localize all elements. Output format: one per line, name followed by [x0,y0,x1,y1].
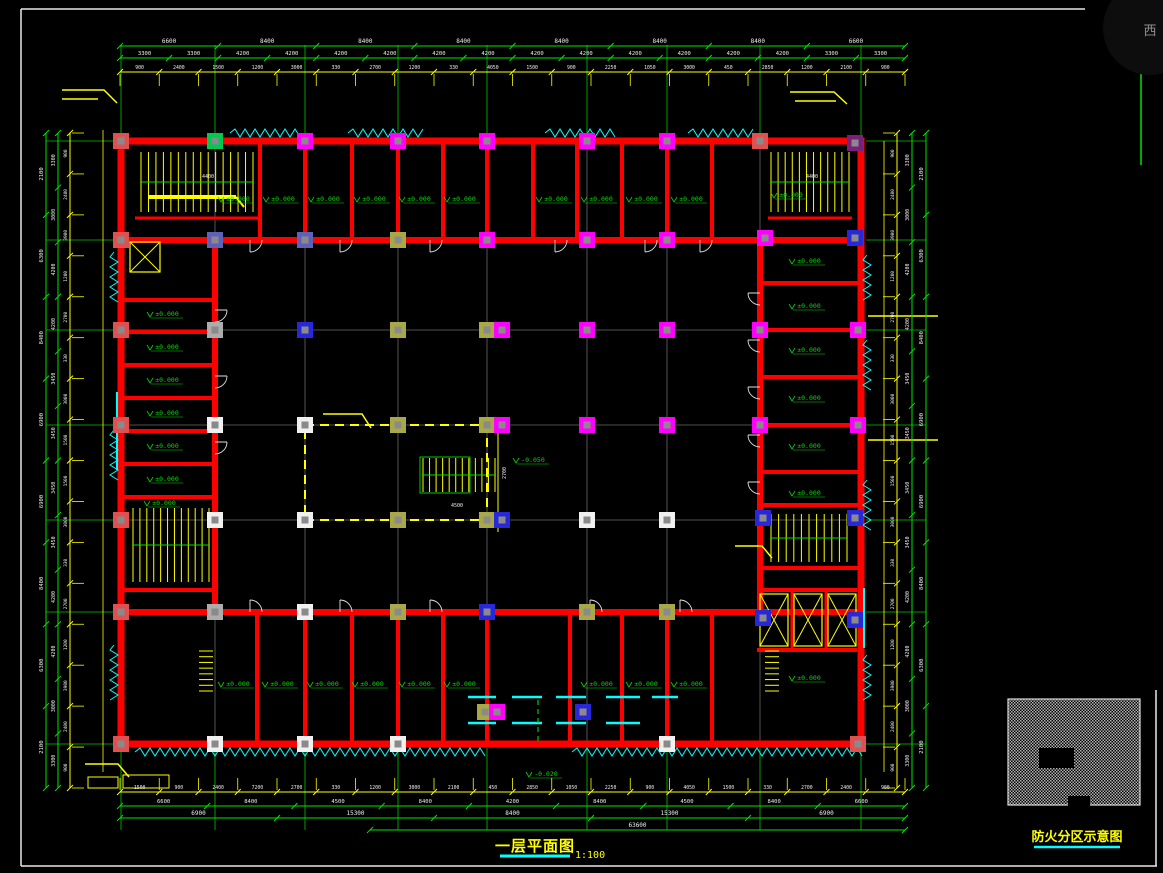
cad-viewport[interactable]: 西 ±0.000±0.000±0.000±0.000±0.000±0.000±0… [0,0,1163,873]
dim-text: 3000 [683,65,695,71]
dim-text: 8400 [919,331,925,344]
dim-text: 900 [646,785,655,791]
column-core [484,609,491,616]
leader-line [790,92,847,104]
column-core [212,138,219,145]
column-core [118,741,125,748]
dim-text: 2100 [448,785,460,791]
column-core [302,327,309,334]
dim-text: 4200 [506,799,519,805]
elevation-flag [526,772,532,777]
elevation-label: ±0.000 [271,195,295,203]
dim-text: 2850 [526,785,538,791]
window-zigzag [348,129,423,137]
dim-text: 3300 [905,755,911,767]
elevation-label: ±0.000 [226,195,250,203]
elevation-label: ±0.000 [797,442,821,450]
dim-text: 2700 [890,312,896,323]
column-core [302,237,309,244]
dim-text: 1500 [723,785,735,791]
dim-text: 330 [890,354,896,362]
dim-text: 4200 [678,51,691,57]
column-core [584,237,591,244]
column-core [484,422,491,429]
leader-line [62,90,117,103]
column-core [302,138,309,145]
elevation-flag [147,477,153,482]
elevation-flag [581,197,587,202]
dim-text: 3900 [63,230,69,241]
inner-dim-text: 4500 [451,503,463,509]
elevation-label: ±0.000 [797,489,821,497]
elevation-label: ±0.000 [679,195,703,203]
dim-text: 4200 [51,318,57,330]
elevation-label: ±0.000 [797,674,821,682]
dim-text: 2850 [762,65,774,71]
dim-text: 2400 [173,65,185,71]
column-core [760,615,767,622]
elevation-label: ±0.000 [270,680,294,688]
dim-text: 8400 [505,810,520,817]
dim-text: 2400 [890,189,896,200]
column-core [757,327,764,334]
dim-text: 330 [763,785,772,791]
elevation-label: ±0.000 [679,680,703,688]
dim-text: 3450 [905,536,911,548]
column-core [212,237,219,244]
column-core [302,422,309,429]
column-core [484,138,491,145]
dim-text: 2400 [63,721,69,732]
column-core [762,235,769,242]
dim-text: 1200 [252,65,264,71]
dim-text: 330 [332,785,341,791]
watermark: 西 [1103,0,1163,75]
dim-text: 6900 [39,413,45,426]
dim-text: 1200 [63,271,69,282]
dim-text: 1050 [644,65,656,71]
column-core [212,741,219,748]
column-core [852,617,859,624]
dim-text: 6300 [919,659,925,672]
dim-text: 6900 [919,413,925,426]
dim-text: 1500 [212,65,224,71]
dim-text: 4200 [432,51,445,57]
dim-text: 4050 [487,65,499,71]
elevation-label: ±0.000 [362,195,386,203]
elevation-labels: ±0.000±0.000±0.000±0.000±0.000±0.000±0.0… [144,191,825,778]
dim-text: 1500 [890,434,896,445]
elevation-label: ±0.000 [589,680,613,688]
dim-text: 3450 [51,373,57,385]
column-core [395,517,402,524]
elevation-label: ±0.000 [315,680,339,688]
elevation-label: ±0.000 [797,257,821,265]
dim-text: 1200 [409,65,421,71]
elevation-flag [789,444,795,449]
dim-text: 3000 [890,516,896,527]
inner-dim-text: 4400 [806,174,818,180]
column-core [499,327,506,334]
column-core [855,741,862,748]
column-core [664,422,671,429]
dim-text: 8400 [419,799,432,805]
dim-text: 2700 [890,598,896,609]
leader-tag [123,775,169,788]
dim-text: 2700 [63,598,69,609]
inner-dim-text: 2700 [502,467,508,479]
elevation-flag [771,193,777,198]
column-core [302,741,309,748]
column-core [852,515,859,522]
dim-text: 3300 [138,51,151,57]
dim-text: 1200 [890,639,896,650]
dim-text: 3300 [51,154,57,166]
dim-text: 4200 [51,591,57,603]
keyplan-courtyard-hole [1039,748,1074,768]
elevation-label: ±0.000 [779,191,803,199]
elevation-label: ±0.000 [155,376,179,384]
dim-text: 8400 [260,38,275,45]
elevation-flag [671,682,677,687]
elevation-flag [308,197,314,202]
main-title: 一层平面图 [495,837,575,855]
elevation-flag [262,682,268,687]
dim-text: 2100 [840,65,852,71]
column-core [395,422,402,429]
elevation-label: ±0.000 [155,409,179,417]
elevation-label: ±0.000 [797,346,821,354]
dim-text: 2100 [919,167,925,180]
dim-text: 900 [890,149,896,157]
elevation-label: ±0.000 [226,680,250,688]
elevation-label: ±0.000 [544,195,568,203]
inner-dim-text: 4400 [202,174,214,180]
dim-text: 450 [489,785,498,791]
dim-text: 2100 [39,167,45,180]
elevation-flag [789,259,795,264]
elevation-label: ±0.000 [452,195,476,203]
dim-text: 3000 [63,516,69,527]
elevation-label: ±0.000 [155,475,179,483]
dim-text: 3300 [51,755,57,767]
window-zigzag [688,129,753,137]
dim-text: 4200 [905,646,911,658]
dim-text: 6300 [39,659,45,672]
column-core [212,327,219,334]
column-core [664,237,671,244]
dim-text: 900 [63,763,69,771]
dim-text: 4500 [680,799,693,805]
dim-text: 6600 [157,799,170,805]
dim-text: 1200 [801,65,813,71]
dim-text: 900 [63,149,69,157]
elevation-flag [626,197,632,202]
dim-text: 8400 [593,799,606,805]
column-core [757,138,764,145]
column-core [484,327,491,334]
dim-text: 4050 [683,785,695,791]
dim-text: 3000 [291,65,303,71]
column-core [584,609,591,616]
dim-text: 4200 [579,51,592,57]
column-core [212,422,219,429]
leader-line [323,414,371,428]
dim-text: 4200 [905,263,911,275]
dim-text: 2250 [605,785,617,791]
dim-text: 3000 [890,393,896,404]
dim-text: 6600 [162,38,177,45]
dim-text: 8400 [358,38,373,45]
elevation-flag [626,682,632,687]
dim-text: 2700 [63,312,69,323]
elevation-flag [789,491,795,496]
structural-columns [113,133,866,752]
elevation-flag [147,312,153,317]
elevation-label: -0.020 [534,770,558,778]
leader-line [85,764,129,777]
dim-text: 8400 [456,38,471,45]
dim-text: 1500 [63,434,69,445]
column-core [395,327,402,334]
column-core [482,709,489,716]
dim-text: 4200 [629,51,642,57]
elevators [130,242,856,646]
dim-text: 8400 [244,799,257,805]
window-zigzag [110,645,118,700]
dim-text: 2700 [369,65,381,71]
dim-text: 330 [449,65,458,71]
column-core [584,138,591,145]
dim-text: 1500 [526,65,538,71]
dim-text: 1200 [63,639,69,650]
dim-text: 2250 [605,65,617,71]
dim-text: 900 [890,763,896,771]
elevation-label: ±0.000 [155,442,179,450]
dim-text: 3450 [51,427,57,439]
column-core [484,237,491,244]
dim-text: 3300 [905,154,911,166]
dim-text: 4200 [236,51,249,57]
dim-text: 4200 [383,51,396,57]
elevation-label: ±0.000 [589,195,613,203]
column-core [855,327,862,334]
elevation-flag [144,501,150,506]
column-core [664,327,671,334]
cad-drawing-canvas[interactable]: 西 ±0.000±0.000±0.000±0.000±0.000±0.000±0… [0,0,1163,873]
dim-text: 4200 [905,591,911,603]
dim-text: 3300 [187,51,200,57]
dim-text: 1500 [890,475,896,486]
column-core [855,422,862,429]
dim-text: 8400 [554,38,569,45]
dim-text: 900 [567,65,576,71]
elevation-label: ±0.000 [155,343,179,351]
dim-text: 2700 [801,785,813,791]
dim-text: 1500 [134,785,146,791]
column-core [664,741,671,748]
elevation-label: ±0.000 [634,195,658,203]
window-zigzag [230,129,300,137]
column-core [118,237,125,244]
dim-text: 3000 [51,700,57,712]
column-core [757,422,764,429]
window-zigzag [110,252,118,302]
dim-text: 6600 [855,799,868,805]
dim-text: 1200 [890,271,896,282]
dim-text: 7200 [252,785,264,791]
dim-text: 3900 [890,680,896,691]
elevation-label: ±0.000 [155,310,179,318]
column-core [395,741,402,748]
column-core [852,235,859,242]
column-core [494,709,501,716]
dim-text: 4200 [727,51,740,57]
dim-text: 3450 [51,536,57,548]
column-core [395,609,402,616]
elevation-label: ±0.000 [797,394,821,402]
dim-text: 330 [63,354,69,362]
dim-text: 4200 [481,51,494,57]
dim-text: 4200 [530,51,543,57]
column-core [395,237,402,244]
column-core [584,327,591,334]
dim-text: 15300 [346,810,364,817]
dim-text: 3300 [874,51,887,57]
walls [121,141,861,744]
column-grid [121,135,861,744]
dim-text: 6900 [919,495,925,508]
column-core [664,517,671,524]
drawing-titles: 一层平面图 1:100 防火分区示意图 [495,829,1123,861]
elevation-flag [354,197,360,202]
dim-text: 15300 [660,810,678,817]
dim-text: 3450 [905,373,911,385]
dim-text: 8400 [39,577,45,590]
elevation-label: ±0.000 [634,680,658,688]
dim-text: 900 [175,785,184,791]
dim-text: 4200 [334,51,347,57]
dim-text: 2400 [840,785,852,791]
column-core [118,138,125,145]
column-core [395,138,402,145]
column-core [302,609,309,616]
elevation-flag [147,411,153,416]
leader-line [735,546,772,558]
dim-text: 6900 [39,495,45,508]
elevation-label: ±0.000 [360,680,384,688]
column-core [499,517,506,524]
elevation-flag [789,304,795,309]
dim-text: 3000 [51,209,57,221]
dim-text: 6600 [849,38,864,45]
column-core [584,422,591,429]
column-core [118,609,125,616]
fire-compartment-keyplan [1008,699,1140,806]
elevation-flag [536,197,542,202]
dim-text: 330 [890,558,896,566]
dim-text: 900 [135,65,144,71]
dim-text: 2400 [63,189,69,200]
dim-text: 1200 [369,785,381,791]
column-core [118,327,125,334]
dim-text: 8400 [39,331,45,344]
column-core [852,140,859,147]
dim-text: 3450 [51,482,57,494]
dim-text: 900 [881,65,890,71]
dim-text: 3000 [409,785,421,791]
column-core [212,609,219,616]
elevation-flag [218,682,224,687]
dim-text: 6300 [39,249,45,262]
elevation-flag [789,676,795,681]
dim-text: 6900 [819,810,834,817]
elevation-label: ±0.000 [407,680,431,688]
dim-text: 4200 [51,263,57,275]
dim-text: 8400 [652,38,667,45]
dim-text: 4500 [331,799,344,805]
dim-text: 450 [724,65,733,71]
dim-text: 2100 [919,740,925,753]
elevation-label: ±0.000 [316,195,340,203]
elevation-flag [263,197,269,202]
column-core [584,517,591,524]
dim-text: 330 [63,558,69,566]
dim-text: 3300 [825,51,838,57]
elevation-flag [671,197,677,202]
dim-text: 2400 [212,785,224,791]
main-title-scale: 1:100 [575,850,605,861]
dim-text: 3900 [63,680,69,691]
dim-text: 2100 [39,740,45,753]
dim-text: 8400 [919,577,925,590]
keyplan-entrance-notch [1068,796,1090,806]
elevation-flag [147,345,153,350]
dim-text: 3900 [890,230,896,241]
elevation-flag [789,396,795,401]
dim-text: 2700 [291,785,303,791]
dim-text: 3000 [63,393,69,404]
column-core [664,609,671,616]
elevation-flag [307,682,313,687]
dim-text: 3000 [905,700,911,712]
dim-text: 6900 [191,810,206,817]
dim-text: 3000 [905,209,911,221]
dim-text: 2400 [890,721,896,732]
elevation-label: -0.050 [521,456,545,464]
dim-text: 3450 [905,482,911,494]
column-core [118,517,125,524]
elevation-flag [147,444,153,449]
dim-text: 3450 [905,427,911,439]
dim-text: 6300 [919,249,925,262]
elevation-label: ±0.000 [452,680,476,688]
watermark-text: 西 [1143,24,1156,39]
column-core [664,138,671,145]
elevation-flag [789,348,795,353]
dim-text: 1500 [63,475,69,486]
column-core [580,709,587,716]
dim-text: 4200 [51,646,57,658]
elevation-label: ±0.000 [152,499,176,507]
elevation-label: ±0.000 [797,302,821,310]
leader-tag [88,777,118,788]
elevation-label: ±0.000 [407,195,431,203]
dim-text: 63600 [628,822,646,829]
elevation-flag [513,458,519,463]
column-core [760,515,767,522]
elevation-flag [147,378,153,383]
